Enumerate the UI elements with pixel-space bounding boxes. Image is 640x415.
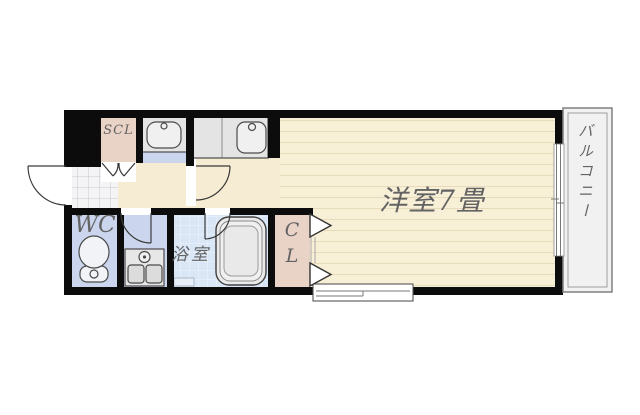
washer-pan-left: [128, 265, 144, 283]
bottom-window: [313, 284, 413, 301]
floor-plan-canvas: [0, 0, 640, 415]
bathroom-step: [174, 278, 194, 286]
washer-drain-dot: [143, 255, 146, 258]
entrance-door: [28, 166, 66, 205]
balcony-area: [563, 108, 612, 292]
kitchen-faucet: [249, 124, 256, 131]
bathtub-inner: [224, 226, 258, 276]
floor-plan-page: SCL WC 浴室 CL 洋室7畳 バルコニー: [0, 0, 640, 415]
washing-machine-pan: [125, 249, 164, 286]
main-room-floor: [280, 117, 555, 287]
toilet-bowl: [79, 236, 109, 268]
balcony-floor: [563, 108, 612, 292]
toilet-fixture: [79, 236, 109, 282]
shoe-closet-floor: [101, 117, 136, 162]
bathtub: [216, 217, 266, 285]
closet-floor: [275, 215, 310, 287]
washer-pan-right: [146, 265, 162, 283]
kitchen-counter: [192, 117, 268, 158]
washbasin-faucet: [161, 123, 167, 129]
entrance-door-arc: [28, 166, 66, 205]
washbasin: [142, 117, 187, 152]
entry-wall-block: [64, 110, 101, 167]
